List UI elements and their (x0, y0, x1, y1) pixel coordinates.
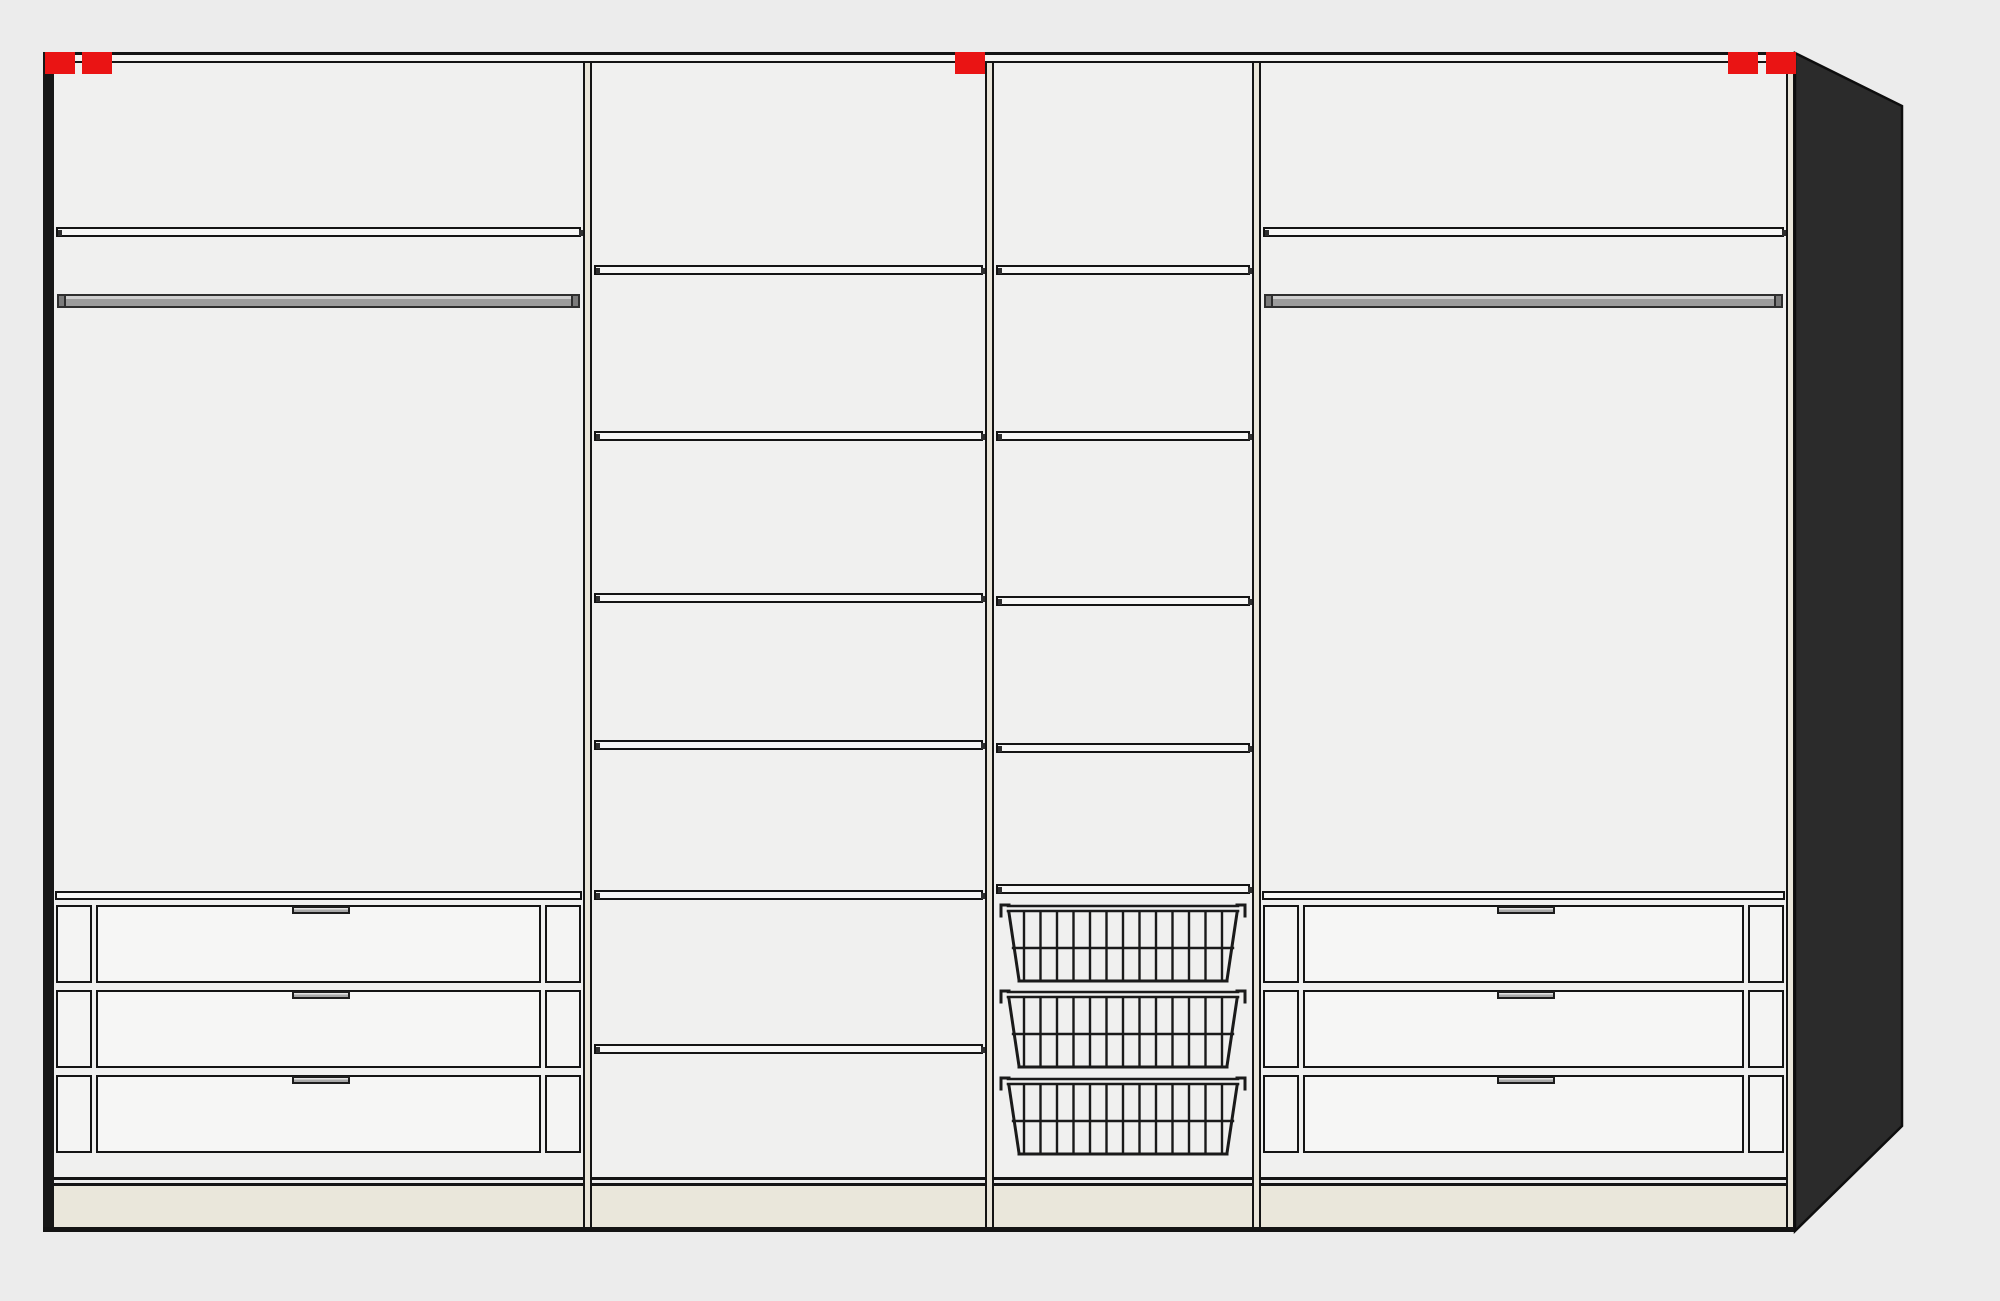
red-marker (955, 52, 985, 74)
red-marker (1766, 52, 1796, 74)
red-marker (82, 52, 112, 74)
side-panel (0, 0, 2000, 1301)
wardrobe-preview (0, 0, 2000, 1301)
red-marker (1728, 52, 1758, 74)
red-marker (45, 52, 75, 74)
